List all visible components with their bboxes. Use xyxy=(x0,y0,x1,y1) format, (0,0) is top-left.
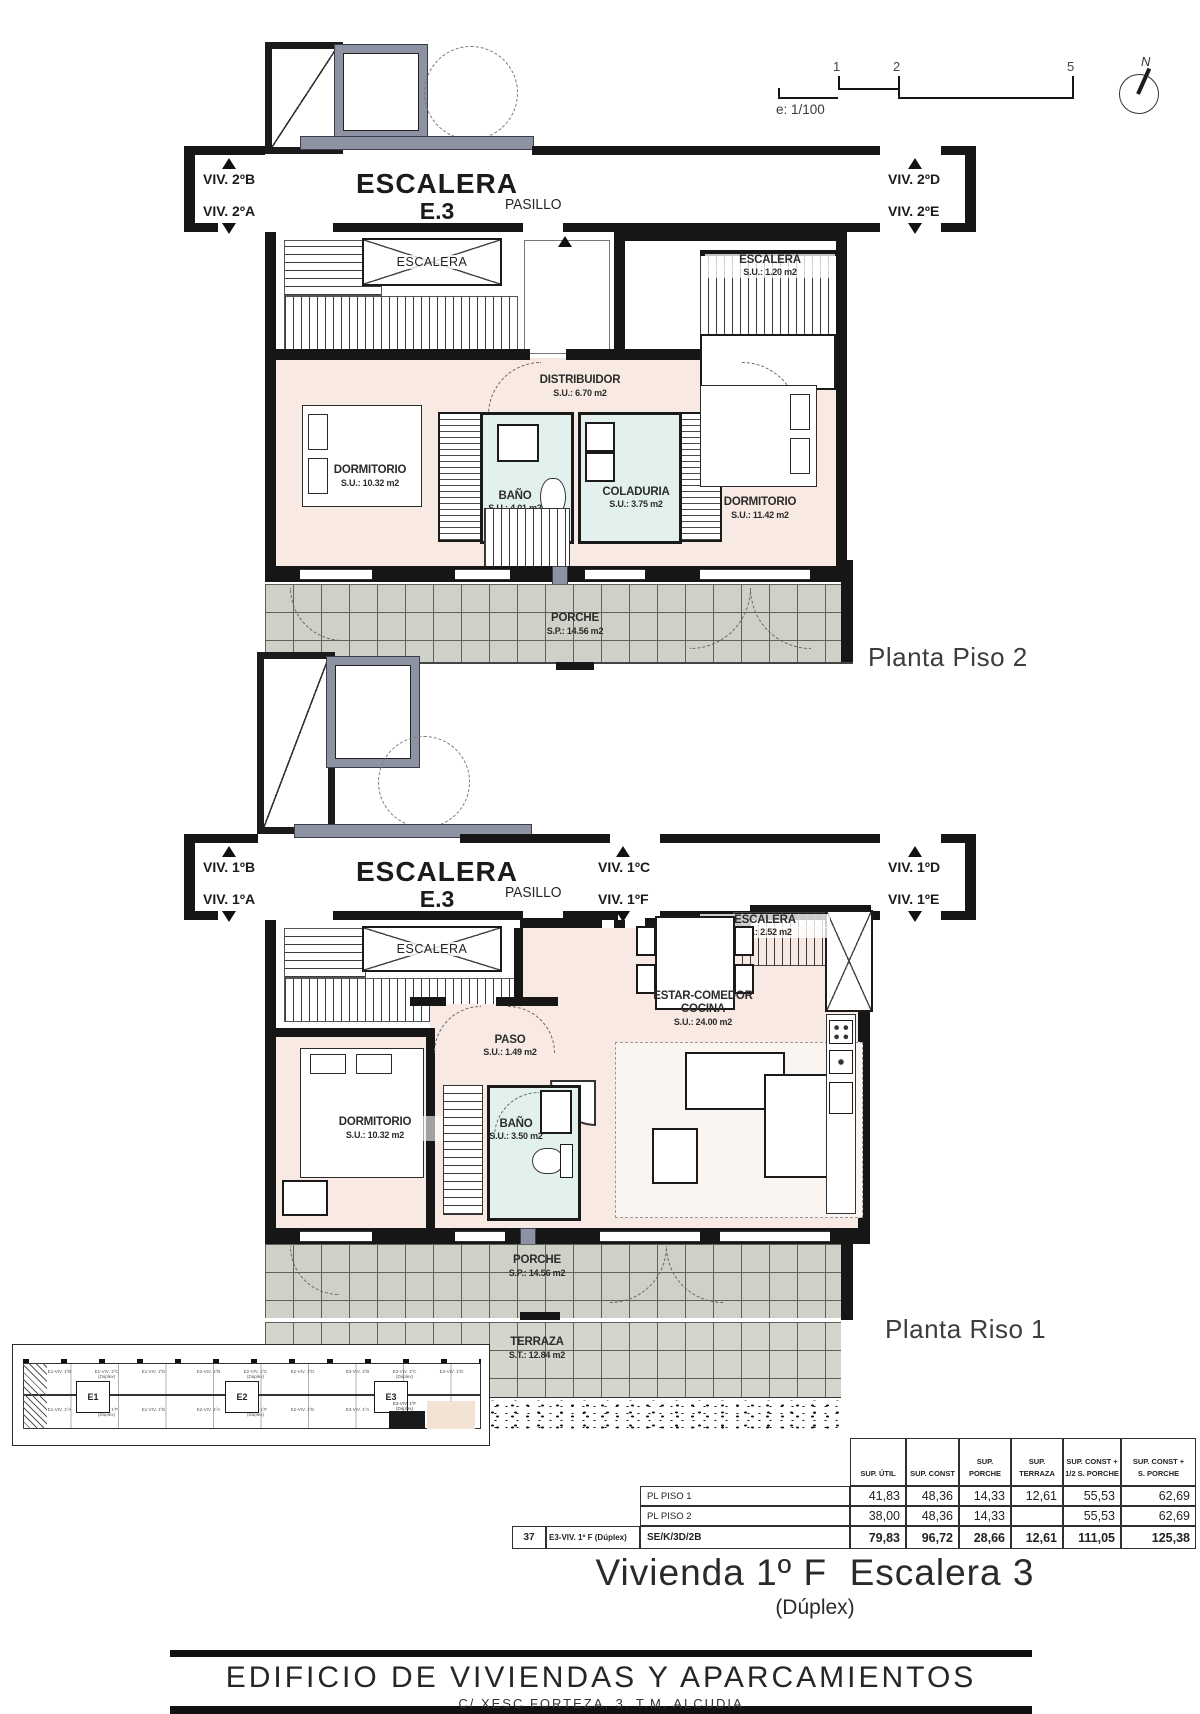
table-cell: 111,05 xyxy=(1063,1526,1121,1549)
table-cell: 55,53 xyxy=(1063,1486,1121,1506)
areas-table: SUP. ÚTIL SUP. CONST SUP. PORCHE SUP. TE… xyxy=(0,0,1200,1560)
table-cell: 14,33 xyxy=(959,1506,1011,1526)
table-header-cell: SUP. CONST + S. PORCHE xyxy=(1121,1438,1196,1486)
table-cell: 38,00 xyxy=(850,1506,906,1526)
table-cell xyxy=(1011,1506,1063,1526)
table-cell: 28,66 xyxy=(959,1526,1011,1549)
table-row-label: PL PISO 1 xyxy=(640,1486,850,1506)
table-header-cell: SUP. TERRAZA xyxy=(1011,1438,1063,1486)
table-cell: 12,61 xyxy=(1011,1526,1063,1549)
table-cell: 55,53 xyxy=(1063,1506,1121,1526)
table-header-cell: SUP. CONST xyxy=(906,1438,959,1486)
dwelling-title: Vivienda 1º F Escalera 3 xyxy=(580,1552,1050,1594)
table-cell: 48,36 xyxy=(906,1506,959,1526)
table-cell: 79,83 xyxy=(850,1526,906,1549)
table-cell: 12,61 xyxy=(1011,1486,1063,1506)
project-title: EDIFICIO DE VIVIENDAS Y APARCAMIENTOS xyxy=(170,1661,1032,1695)
table-header-cell: SUP. PORCHE xyxy=(959,1438,1011,1486)
table-header-cell: SUP. ÚTIL xyxy=(850,1438,906,1486)
table-row-label: PL PISO 2 xyxy=(640,1506,850,1526)
table-cell: 62,69 xyxy=(1121,1506,1196,1526)
table-unit-code: SE/K/3D/2B xyxy=(640,1526,850,1549)
table-unit-name: E3-VIV. 1º F (Dúplex) xyxy=(546,1526,640,1549)
table-cell: 62,69 xyxy=(1121,1486,1196,1506)
table-header-cell: SUP. CONST + 1/2 S. PORCHE xyxy=(1063,1438,1121,1486)
project-address: C/ XESC FORTEZA, 3. T.M. ALCUDIA xyxy=(170,1696,1032,1711)
table-cell: 14,33 xyxy=(959,1486,1011,1506)
table-cell: 96,72 xyxy=(906,1526,959,1549)
dwelling-subtitle: (Dúplex) xyxy=(580,1596,1050,1620)
footer-banner: EDIFICIO DE VIVIENDAS Y APARCAMIENTOS C/… xyxy=(170,1650,1032,1714)
title-block: Vivienda 1º F Escalera 3 (Dúplex) xyxy=(580,1552,1050,1620)
table-cell: 48,36 xyxy=(906,1486,959,1506)
table-cell: 125,38 xyxy=(1121,1526,1196,1549)
table-cell: 41,83 xyxy=(850,1486,906,1506)
table-unit-number: 37 xyxy=(512,1526,546,1549)
